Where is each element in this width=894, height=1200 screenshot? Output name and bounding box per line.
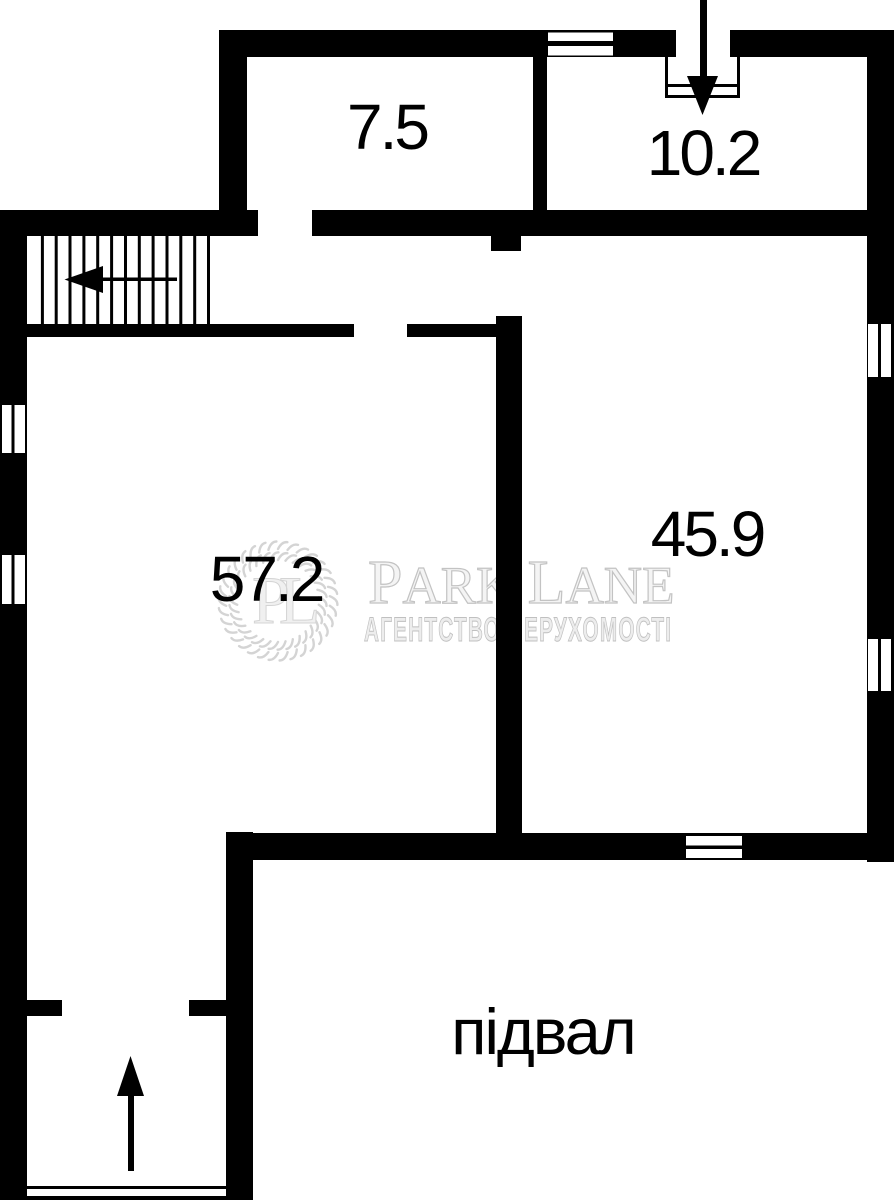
svg-text:підвал: підвал <box>451 995 634 1068</box>
svg-text:45.9: 45.9 <box>651 498 764 570</box>
svg-text:10.2: 10.2 <box>647 117 760 189</box>
svg-text:7.5: 7.5 <box>347 91 427 163</box>
svg-text:57.2: 57.2 <box>210 543 323 615</box>
